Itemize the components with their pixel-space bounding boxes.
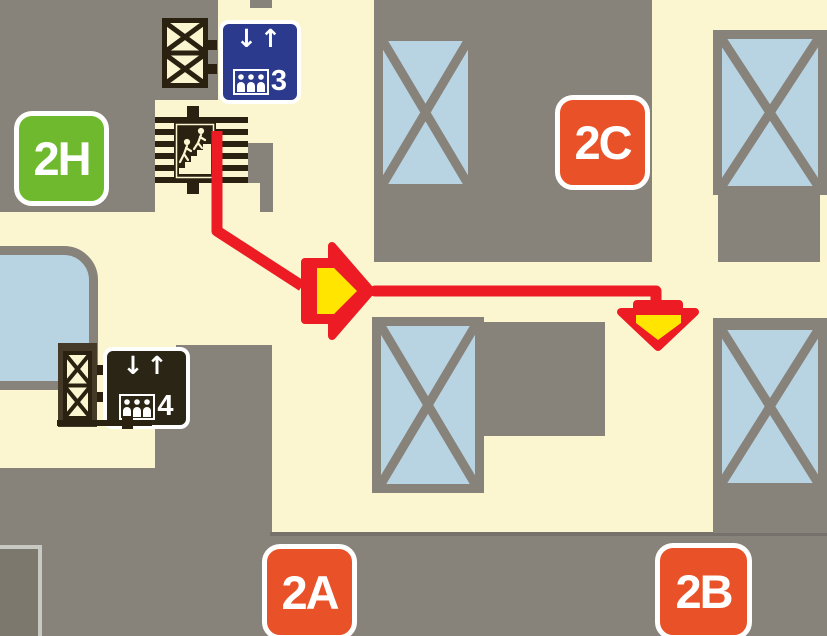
room-outline-bottom-left <box>0 545 42 636</box>
exit-badge-2h[interactable]: 2H <box>14 111 109 206</box>
elevator-shaft-icon-bottom[interactable] <box>58 343 97 427</box>
elevator-x-frame-icon <box>63 351 92 420</box>
elevator-number: 3 <box>271 67 287 96</box>
closed-area-box-top <box>383 41 468 184</box>
closed-area-box-center <box>381 326 475 484</box>
elevator-number: 4 <box>157 392 173 421</box>
exit-badge-2a[interactable]: 2A <box>262 544 357 636</box>
wall-pedestal-right-top <box>718 190 820 262</box>
updown-arrows: ↓↑ <box>123 353 171 378</box>
route-arrow-right-icon <box>305 246 371 336</box>
exit-label: 2C <box>574 115 630 170</box>
closed-area-box-bottom-right <box>722 330 818 483</box>
x-cross-icon <box>381 326 475 484</box>
stairs-icon[interactable] <box>155 106 248 194</box>
wall-notch-top <box>250 0 272 8</box>
elevator-x-frame-icon <box>162 18 208 88</box>
connector-nub <box>208 40 217 50</box>
wall-block-center <box>483 322 605 436</box>
stairs-tab-bottom <box>187 183 199 194</box>
exit-badge-2c[interactable]: 2C <box>555 95 650 190</box>
exit-label: 2B <box>675 564 731 619</box>
wall-line-tab <box>122 416 133 429</box>
up-arrow-icon: ↑ <box>260 24 284 53</box>
updown-arrows: ↓↑ <box>236 26 284 51</box>
floor-map: ↓↑ 3 ↓↑ <box>0 0 827 636</box>
stairs-pictogram <box>174 122 216 180</box>
route-arrow-down-icon <box>621 304 695 347</box>
x-cross-icon <box>383 41 468 184</box>
elevator-sign-3[interactable]: ↓↑ 3 <box>219 20 301 104</box>
down-arrow-icon: ↓ <box>236 24 260 53</box>
elevator-sign-4[interactable]: ↓↑ 4 <box>103 347 190 429</box>
up-arrow-icon: ↑ <box>147 351 171 380</box>
wall-piece-right-of-stairs-2 <box>260 143 273 212</box>
stairs-tab-top <box>187 106 199 118</box>
connector-nub <box>208 64 217 74</box>
x-cross-icon <box>722 330 818 483</box>
people-in-elevator-icon <box>233 69 269 95</box>
exit-badge-2b[interactable]: 2B <box>655 543 752 636</box>
closed-area-box-top-right <box>722 39 818 186</box>
elevator-shaft-icon-top[interactable] <box>162 18 208 88</box>
exit-label: 2H <box>33 131 89 186</box>
down-arrow-icon: ↓ <box>123 351 147 380</box>
wall-line <box>57 420 152 426</box>
exit-label: 2A <box>281 565 337 620</box>
x-cross-icon <box>722 39 818 186</box>
